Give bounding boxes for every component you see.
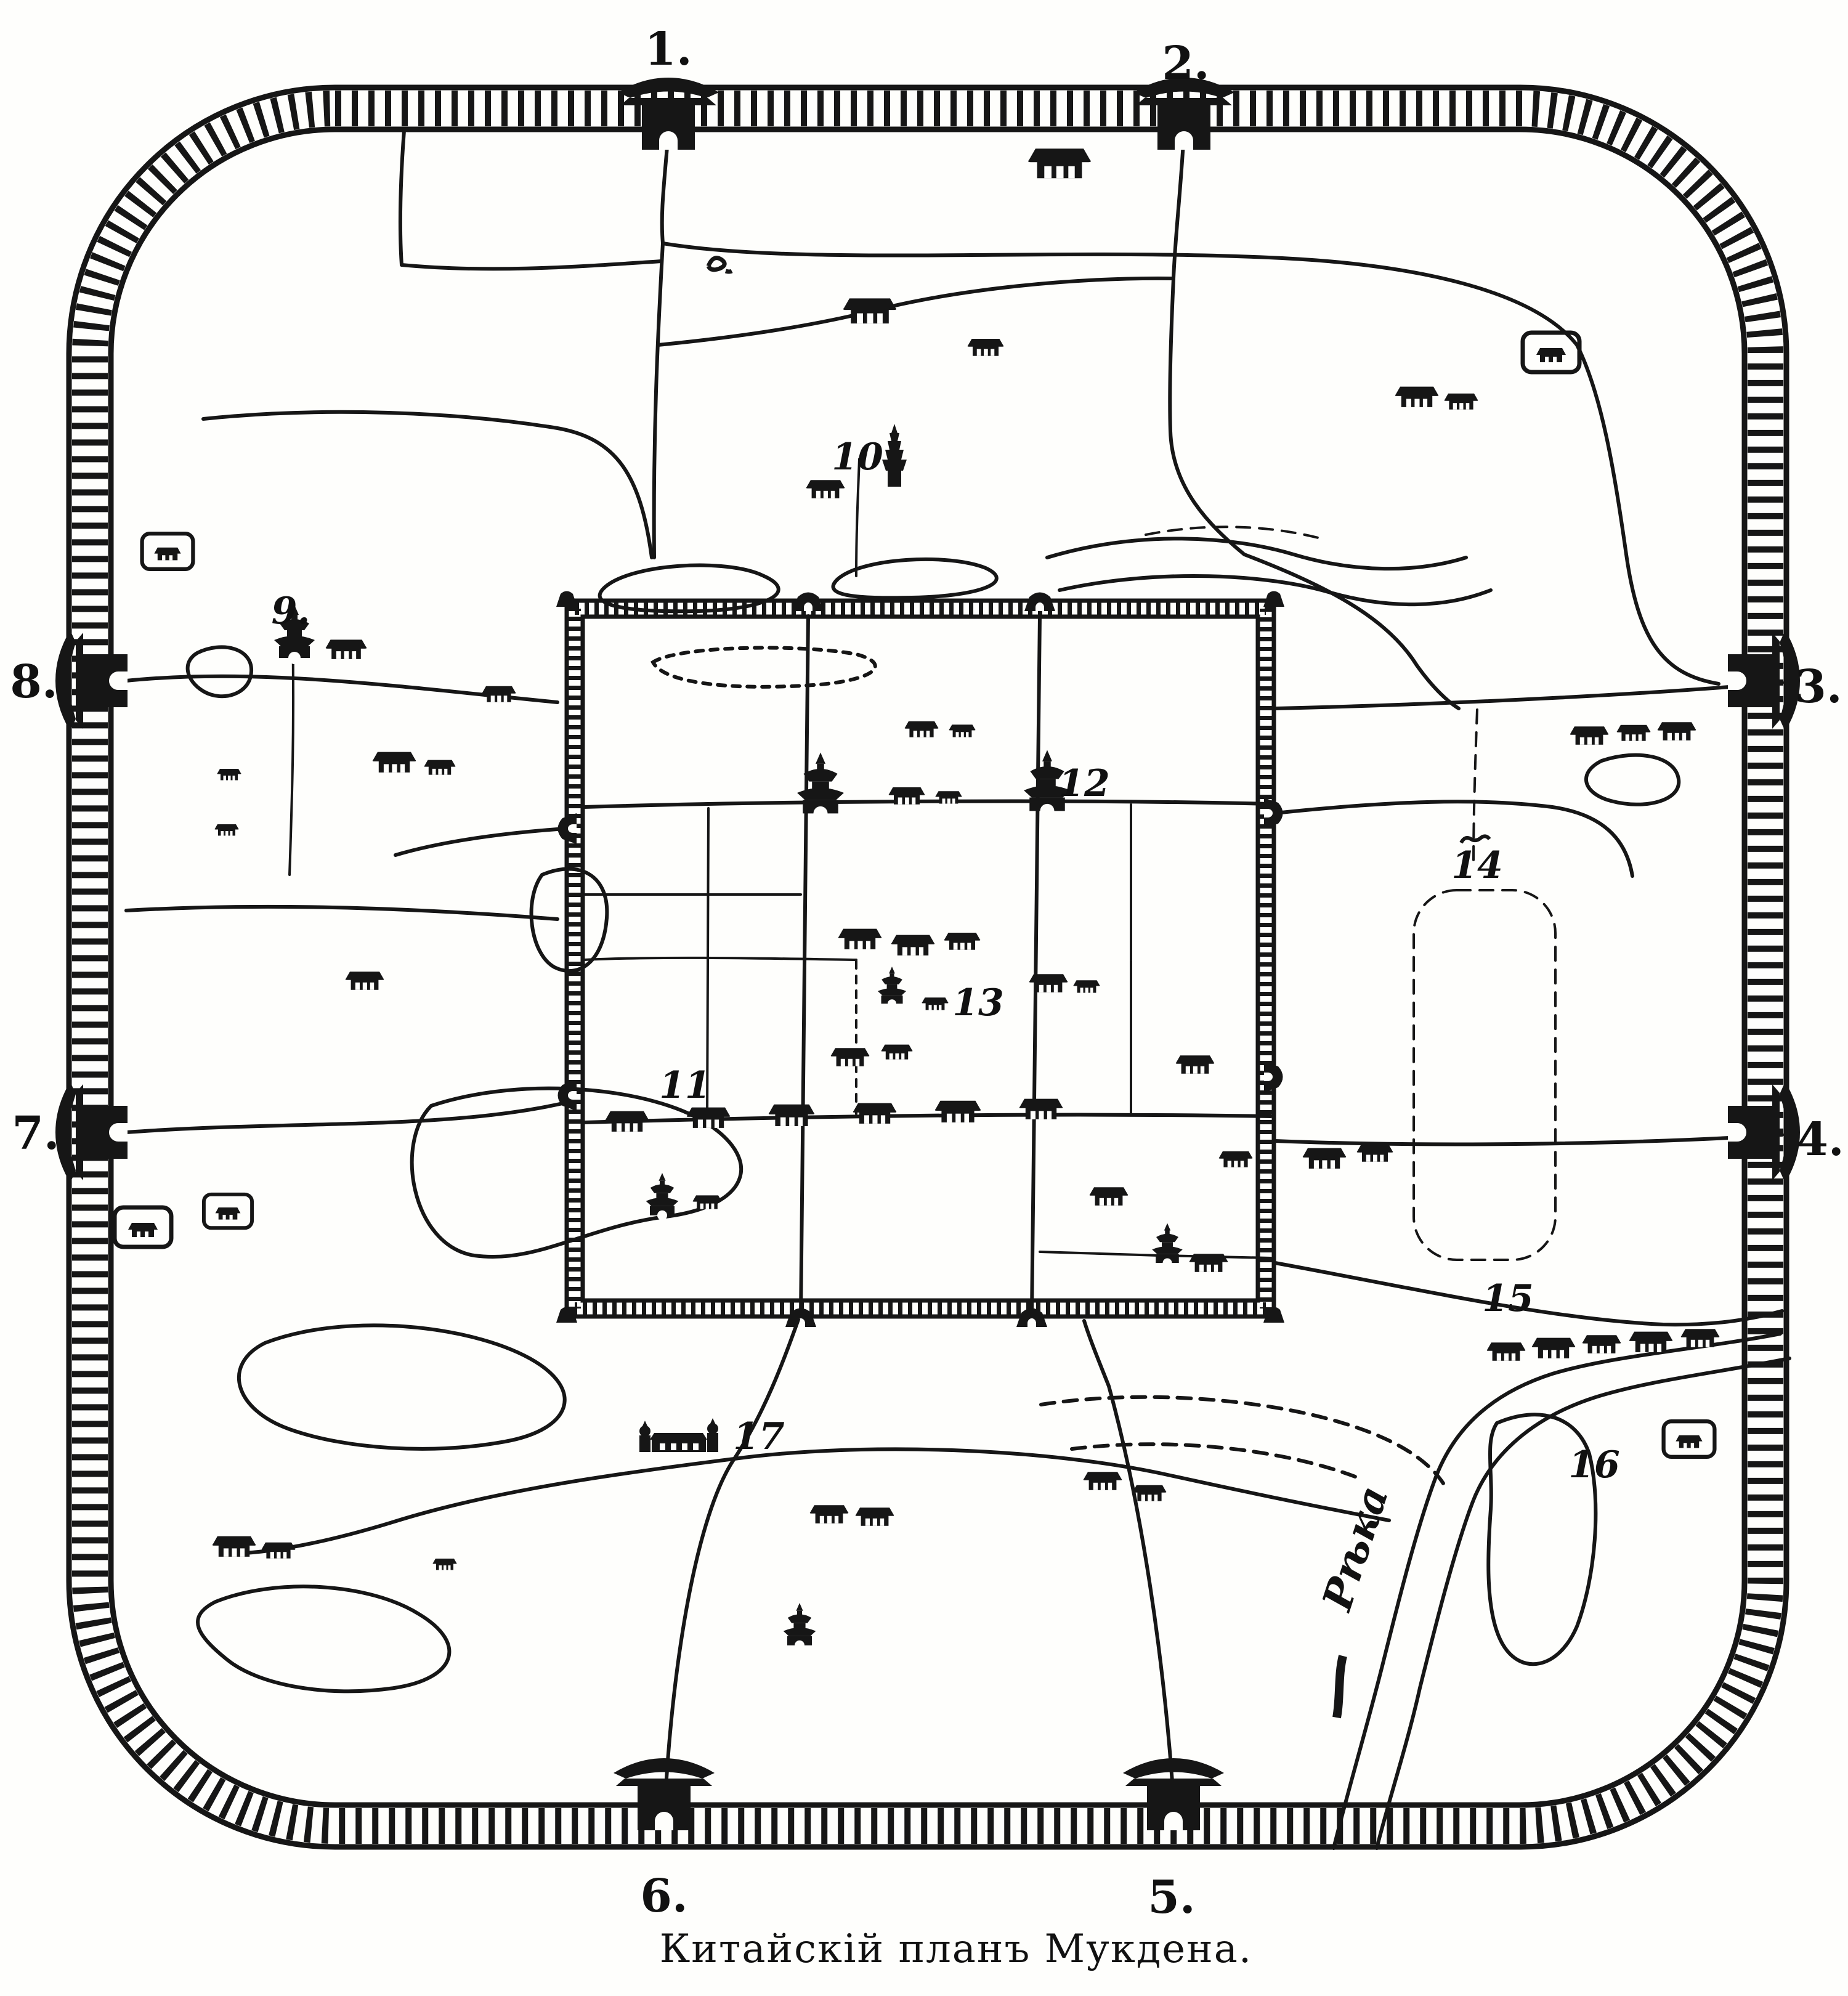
corner-tower-icon [1263, 591, 1284, 607]
gate-number-1: 1. [644, 23, 692, 76]
temple-icon [1152, 1223, 1183, 1268]
house-icon [922, 997, 948, 1010]
house-icon [1532, 1338, 1575, 1358]
inner-gate-icon [793, 593, 824, 612]
house-icon [1084, 1472, 1122, 1490]
house-icon [213, 1536, 256, 1557]
temple-icon [878, 967, 906, 1008]
gate-number-3: 3. [1794, 660, 1842, 713]
outer-wall-outline [69, 87, 1786, 1847]
house-icon [968, 339, 1004, 356]
road [400, 131, 404, 265]
house-icon [838, 929, 881, 949]
road [584, 801, 1271, 807]
road [665, 1320, 798, 1799]
road [203, 412, 652, 558]
buildings [115, 148, 1719, 1650]
temple-icon [784, 1603, 816, 1650]
landmark-number-12: 12 [1058, 762, 1110, 805]
road [1275, 683, 1782, 708]
figure: Рѣка [0, 0, 1848, 1996]
shop-row-icon [935, 1101, 981, 1122]
field-block [1414, 890, 1555, 1260]
house-icon [1570, 726, 1609, 745]
house-icon [1395, 387, 1438, 407]
house-icon [482, 686, 516, 702]
inner-gate-icon [1264, 1061, 1283, 1092]
gate-number-2: 2. [1162, 37, 1209, 90]
pagoda-icon [882, 424, 907, 487]
gate-icon [614, 1758, 715, 1830]
house-icon [1189, 1254, 1228, 1272]
house-icon [693, 1195, 722, 1209]
road [1040, 1252, 1271, 1258]
house-icon [217, 769, 241, 781]
road [1577, 345, 1719, 684]
road [402, 261, 662, 269]
house-icon [1219, 1151, 1253, 1167]
pond [188, 647, 251, 696]
road [234, 1459, 734, 1554]
pond [1586, 755, 1679, 805]
boxed-house-icon [142, 533, 193, 569]
house-icon [1133, 1485, 1167, 1501]
shop-row-icon [769, 1105, 814, 1126]
road [663, 243, 1577, 345]
gate-icon [55, 630, 128, 731]
house-icon [1617, 725, 1651, 741]
house-icon [432, 1559, 456, 1570]
road [1244, 554, 1459, 708]
gate-number-8: 8. [10, 655, 57, 708]
landmark-number-14: 14 [1451, 844, 1503, 887]
house-icon [1487, 1342, 1526, 1361]
house-icon [905, 721, 939, 737]
script-mark [708, 258, 732, 272]
corner-tower-icon [556, 591, 577, 607]
house-icon [935, 791, 962, 803]
shop-row-icon [853, 1103, 896, 1124]
house-icon [424, 760, 456, 775]
landmark-number-16: 16 [1568, 1443, 1620, 1487]
house-icon [1029, 974, 1068, 992]
house-icon [843, 298, 896, 323]
road [290, 628, 293, 875]
house-icon [214, 824, 238, 836]
house-icon [891, 935, 934, 955]
river-label: Рѣка [1313, 1480, 1398, 1617]
house-icon [373, 752, 416, 773]
house-icon [1445, 394, 1478, 410]
house-icon [944, 933, 981, 950]
temple-icon [646, 1173, 679, 1220]
gate-number-7: 7. [12, 1107, 59, 1160]
shore-line [1047, 538, 1466, 569]
lake [239, 1325, 565, 1448]
shore-line [1072, 1444, 1355, 1477]
boxed-house-icon [204, 1195, 252, 1228]
shop-row-icon [606, 1111, 649, 1132]
house-icon [1357, 1145, 1393, 1162]
script-mark [1461, 836, 1489, 843]
road [395, 829, 565, 855]
road [1084, 1321, 1173, 1799]
house-icon [346, 972, 384, 990]
landmark-number-11: 11 [659, 1064, 711, 1107]
outer-wall-hatch [90, 108, 1765, 1826]
road [1275, 1135, 1782, 1144]
drum-tower-icon [797, 753, 844, 821]
gate-number-6: 6. [640, 1870, 687, 1923]
church-icon [639, 1418, 718, 1452]
landmark-number-15: 15 [1482, 1277, 1534, 1320]
house-icon [262, 1543, 296, 1559]
gate-icon [55, 1082, 128, 1183]
map-caption: Китайскій планъ Мукдена. [660, 1926, 1253, 1972]
road [1170, 278, 1244, 554]
landmark-number-9: 9. [272, 590, 310, 633]
road [126, 907, 557, 919]
house-icon [810, 1505, 849, 1523]
lake [198, 1586, 449, 1691]
road [584, 958, 856, 960]
shop-row-icon [1019, 1099, 1063, 1119]
house-icon [881, 1045, 913, 1060]
landmark-number-17: 17 [733, 1415, 785, 1458]
outer-wall-inner-outline [111, 129, 1745, 1805]
house-icon [1629, 1332, 1672, 1352]
road [658, 278, 1173, 345]
shop-row-icon [687, 1108, 730, 1128]
road [801, 616, 808, 1315]
map-canvas: Рѣка [0, 0, 1848, 1996]
road-network [126, 131, 1782, 1799]
road [1032, 616, 1040, 1315]
boxed-house-icon [1664, 1421, 1715, 1457]
house-icon [889, 787, 925, 805]
house-icon [856, 1507, 894, 1526]
pond [833, 559, 997, 598]
house-icon [831, 1048, 870, 1066]
house-icon [1028, 148, 1091, 178]
inner-gate-icon [1024, 593, 1055, 612]
house-icon [1090, 1187, 1129, 1206]
house-icon [806, 480, 845, 498]
house-icon [1583, 1335, 1621, 1353]
house-icon [1658, 722, 1696, 740]
house-icon [1176, 1055, 1215, 1074]
outer-wall [69, 87, 1786, 1847]
boxed-house-icon [115, 1207, 171, 1247]
road [654, 243, 663, 558]
shore-line [1146, 527, 1318, 538]
house-icon [949, 724, 975, 737]
gate-number-4: 4. [1796, 1113, 1844, 1166]
house-icon [1303, 1148, 1346, 1169]
house-icon [1073, 980, 1100, 992]
inner-gate-icon [558, 1080, 577, 1111]
road [126, 1103, 565, 1132]
reeds-mark [1337, 1656, 1343, 1718]
landmark-number-13: 13 [952, 981, 1004, 1024]
house-icon [326, 639, 367, 659]
landmark-number-10: 10 [832, 436, 883, 479]
pond [653, 647, 875, 686]
gate-number-5: 5. [1148, 1871, 1195, 1924]
house-icon [1681, 1329, 1720, 1347]
